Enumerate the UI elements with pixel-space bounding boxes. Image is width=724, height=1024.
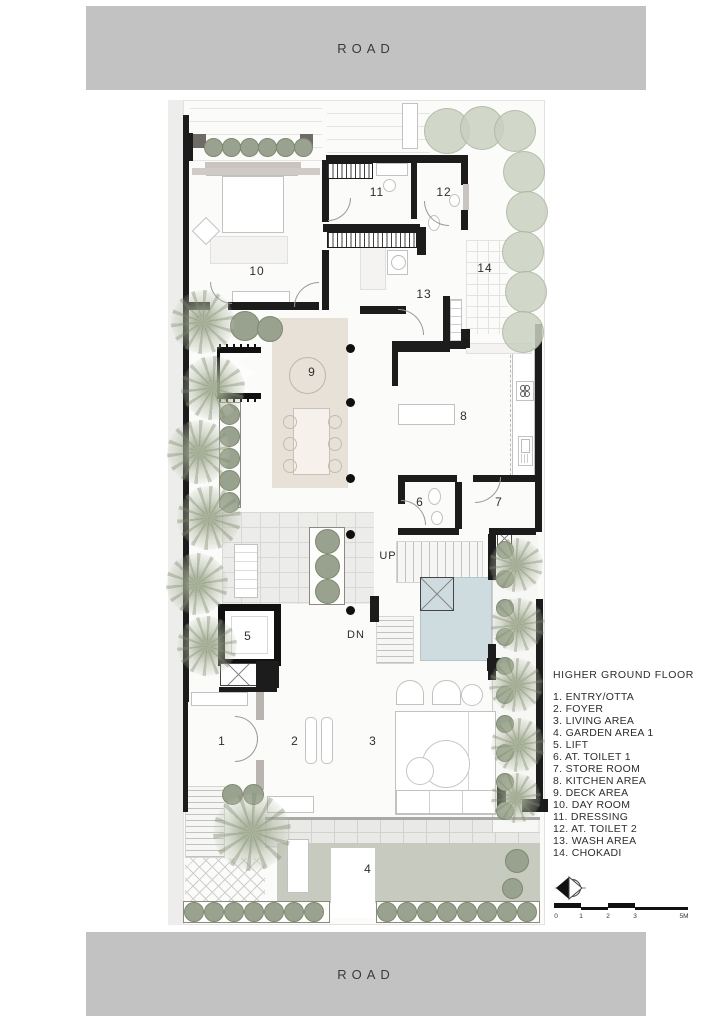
window-segment bbox=[463, 184, 469, 210]
wall-segment bbox=[370, 596, 379, 622]
shrub-circle bbox=[505, 849, 529, 873]
scale-tick: 5M bbox=[679, 913, 688, 920]
garden-lounger bbox=[287, 839, 309, 893]
wall-segment bbox=[411, 163, 417, 219]
palm-tree bbox=[491, 718, 545, 772]
stove bbox=[516, 381, 534, 401]
room-label-4: 4 bbox=[364, 862, 372, 876]
legend-item: 5. LIFT bbox=[553, 739, 723, 751]
dining-chair bbox=[328, 415, 342, 429]
dining-chair bbox=[328, 459, 342, 473]
palm-tree bbox=[491, 773, 541, 823]
armchair bbox=[432, 680, 461, 705]
dresser bbox=[376, 163, 408, 176]
room-label-9: 9 bbox=[308, 365, 316, 379]
room-label-11: 11 bbox=[370, 185, 384, 199]
shrub-circle bbox=[315, 579, 340, 604]
road-top-label: ROAD bbox=[337, 41, 395, 56]
shrub-circle bbox=[204, 902, 224, 922]
wall-segment bbox=[322, 250, 329, 310]
legend-item: 2. FOYER bbox=[553, 703, 723, 715]
palm-tree bbox=[489, 658, 543, 712]
column-block bbox=[402, 103, 418, 149]
wall-segment bbox=[326, 155, 467, 163]
tree-canopy bbox=[506, 191, 548, 233]
console-table bbox=[305, 717, 317, 764]
wall-segment bbox=[392, 341, 466, 349]
shrub-circle bbox=[457, 902, 477, 922]
legend-item: 14. CHOKADI bbox=[553, 847, 723, 859]
entry-wall-segment bbox=[256, 688, 264, 720]
shrub-circle bbox=[284, 902, 304, 922]
wardrobe-hatch bbox=[327, 232, 417, 248]
stairs-down bbox=[376, 616, 414, 664]
shrub-circle bbox=[315, 554, 340, 579]
legend-title: HIGHER GROUND FLOOR bbox=[553, 669, 723, 681]
dresser-stool bbox=[383, 179, 396, 192]
mandir-wall bbox=[217, 347, 261, 353]
bed bbox=[222, 176, 284, 233]
shrub-circle bbox=[437, 902, 457, 922]
floor-plan-page: { "road_top_label": "ROAD", "road_bottom… bbox=[0, 0, 724, 1024]
legend-item: 10. DAY ROOM bbox=[553, 799, 723, 811]
palm-tree bbox=[181, 356, 245, 420]
wall-segment bbox=[455, 482, 462, 529]
wardrobe-hatch bbox=[327, 163, 373, 179]
shrub-circle bbox=[315, 529, 340, 554]
palm-tree bbox=[166, 553, 228, 615]
legend-item: 6. AT. TOILET 1 bbox=[553, 751, 723, 763]
room-label-8: 8 bbox=[460, 409, 468, 423]
shrub-circle bbox=[244, 902, 264, 922]
scale-segment bbox=[554, 903, 581, 908]
dining-table bbox=[293, 408, 330, 475]
column-dot bbox=[346, 530, 355, 539]
up-label: UP bbox=[379, 550, 396, 562]
scale-segment bbox=[608, 903, 635, 908]
counter-dash-line bbox=[510, 350, 512, 476]
shrub-circle bbox=[304, 902, 324, 922]
column-dot bbox=[346, 606, 355, 615]
burner bbox=[524, 391, 530, 397]
tree-canopy bbox=[503, 151, 545, 193]
lounger bbox=[234, 544, 258, 598]
shrub-circle bbox=[294, 138, 313, 157]
shrub-circle bbox=[517, 902, 537, 922]
shrub-circle bbox=[264, 902, 284, 922]
wall-segment bbox=[256, 661, 279, 688]
room-label-10: 10 bbox=[249, 264, 264, 278]
dining-chair bbox=[283, 437, 297, 451]
wash-counter bbox=[360, 246, 386, 290]
road-bottom: ROAD bbox=[86, 932, 646, 1016]
legend-item: 4. GARDEN AREA 1 bbox=[553, 727, 723, 739]
entry-bench bbox=[191, 692, 248, 706]
wall-segment bbox=[535, 324, 542, 532]
wall-segment bbox=[461, 210, 468, 230]
shrub-circle bbox=[258, 138, 277, 157]
legend-item: 12. AT. TOILET 2 bbox=[553, 823, 723, 835]
wall-segment bbox=[417, 227, 426, 255]
legend-item: 13. WASH AREA bbox=[553, 835, 723, 847]
palm-tree bbox=[213, 793, 291, 871]
room-label-5: 5 bbox=[244, 629, 252, 643]
shrub-circle bbox=[497, 902, 517, 922]
basin bbox=[431, 511, 443, 525]
rug bbox=[210, 236, 288, 264]
dining-chair bbox=[283, 459, 297, 473]
room-label-1: 1 bbox=[218, 734, 226, 748]
wall-segment bbox=[461, 155, 468, 185]
room-label-12: 12 bbox=[436, 185, 451, 199]
shrub-circle bbox=[257, 316, 283, 342]
palm-tree bbox=[489, 538, 543, 592]
palm-tree bbox=[491, 598, 545, 652]
palm-tree bbox=[177, 486, 241, 550]
wall-segment bbox=[392, 349, 398, 386]
legend-item: 3. LIVING AREA bbox=[553, 715, 723, 727]
north-compass-icon bbox=[552, 872, 588, 904]
wall-segment bbox=[398, 528, 459, 535]
side-stool bbox=[461, 684, 483, 706]
room-label-14: 14 bbox=[477, 261, 492, 275]
console-table bbox=[321, 717, 333, 764]
shrub-circle bbox=[276, 138, 295, 157]
room-label-13: 13 bbox=[416, 287, 431, 301]
room-label-7: 7 bbox=[495, 495, 503, 509]
coffee-table bbox=[406, 757, 434, 785]
shrub-circle bbox=[417, 902, 437, 922]
scale-tick: 3 bbox=[633, 913, 637, 920]
kitchen-island bbox=[398, 404, 455, 425]
shrub-circle bbox=[240, 138, 259, 157]
room-label-3: 3 bbox=[369, 734, 377, 748]
legend-item: 9. DECK AREA bbox=[553, 787, 723, 799]
shrub-circle bbox=[397, 902, 417, 922]
shrub-circle bbox=[502, 878, 523, 899]
wall-segment bbox=[183, 702, 188, 812]
legend-item: 1. ENTRY/OTTA bbox=[553, 691, 723, 703]
column-dot bbox=[346, 474, 355, 483]
palm-tree bbox=[171, 290, 235, 354]
scale-tick: 0 bbox=[554, 913, 558, 920]
shrub-circle bbox=[184, 902, 204, 922]
shrub-circle bbox=[224, 902, 244, 922]
wall-segment bbox=[398, 475, 457, 482]
skylight-x-marker bbox=[420, 577, 454, 611]
road-bottom-label: ROAD bbox=[337, 967, 395, 982]
column-dot bbox=[346, 344, 355, 353]
scale-segment bbox=[581, 907, 608, 910]
dn-label: DN bbox=[347, 629, 365, 641]
dining-chair bbox=[283, 415, 297, 429]
window-sill bbox=[192, 168, 320, 175]
toilet bbox=[428, 488, 441, 505]
palm-tree bbox=[167, 420, 231, 484]
scale-tick: 2 bbox=[606, 913, 610, 920]
wall-segment bbox=[489, 528, 536, 535]
road-top: ROAD bbox=[86, 6, 646, 90]
room-label-2: 2 bbox=[291, 734, 299, 748]
wall-segment bbox=[323, 224, 420, 232]
dining-chair bbox=[328, 437, 342, 451]
sofa-seat-row bbox=[396, 790, 496, 814]
sink-bowl bbox=[521, 439, 530, 453]
tree-canopy bbox=[505, 271, 547, 313]
legend-item: 11. DRESSING bbox=[553, 811, 723, 823]
drainboard bbox=[521, 454, 530, 463]
column-dot bbox=[346, 398, 355, 407]
tree-canopy bbox=[502, 231, 544, 273]
lawn-area bbox=[277, 843, 540, 903]
shrub-circle bbox=[204, 138, 223, 157]
entry-path bbox=[331, 848, 375, 918]
tree-canopy bbox=[502, 311, 544, 353]
scale-segment bbox=[635, 907, 688, 910]
legend-item: 8. KITCHEN AREA bbox=[553, 775, 723, 787]
scale-tick: 1 bbox=[579, 913, 583, 920]
tree-canopy bbox=[494, 110, 536, 152]
legend-item: 7. STORE ROOM bbox=[553, 763, 723, 775]
wall-segment bbox=[183, 133, 193, 161]
shrub-circle bbox=[377, 902, 397, 922]
wall-segment bbox=[219, 687, 277, 692]
shrub-circle bbox=[477, 902, 497, 922]
armchair bbox=[396, 680, 424, 705]
palm-tree bbox=[177, 616, 237, 676]
shrub-circle bbox=[222, 138, 241, 157]
washing-machine-drum bbox=[391, 255, 406, 270]
scale-bar: 0 1 2 3 5M bbox=[554, 901, 688, 921]
sink bbox=[518, 436, 533, 466]
legend: HIGHER GROUND FLOOR 1. ENTRY/OTTA 2. FOY… bbox=[553, 669, 723, 859]
